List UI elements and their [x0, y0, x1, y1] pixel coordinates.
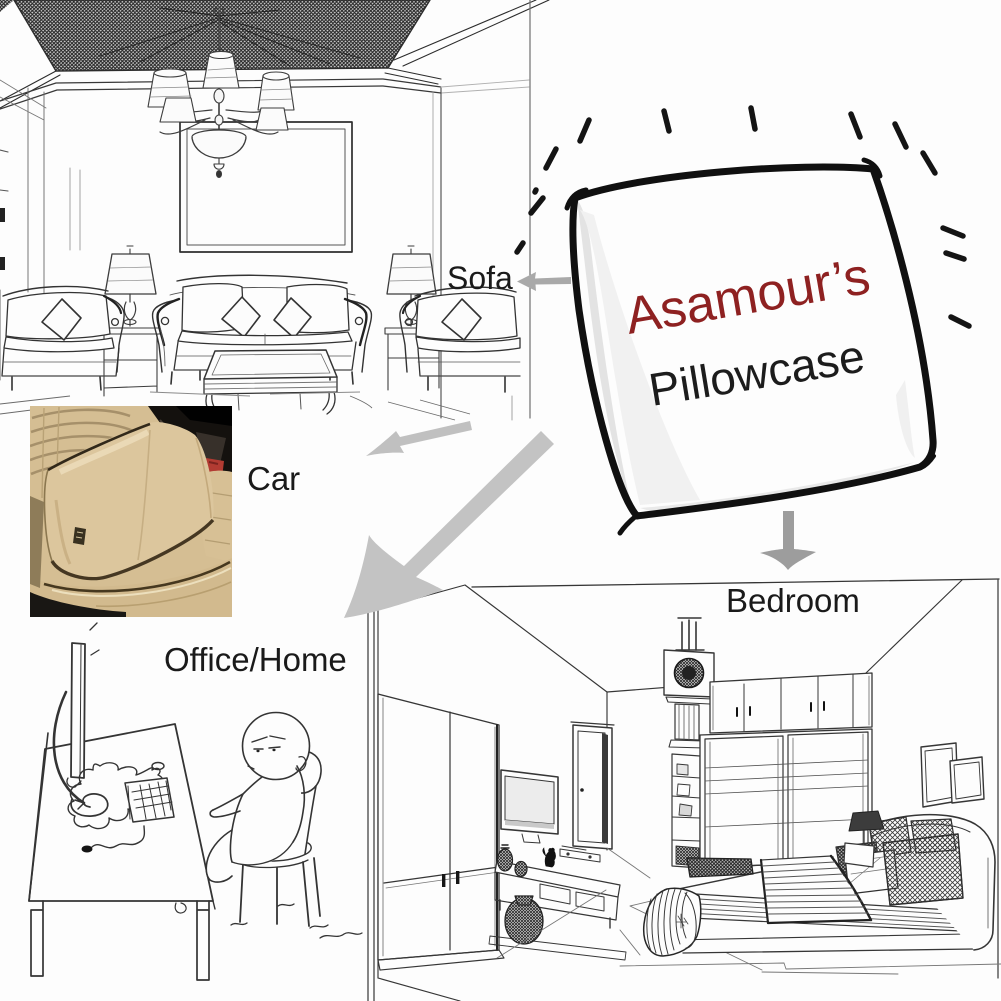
svg-text:Asamour’s: Asamour’s: [621, 247, 874, 346]
svg-text:Pillowcase: Pillowcase: [645, 329, 868, 415]
svg-text:Bedroom: Bedroom: [726, 582, 860, 619]
svg-text:Sofa: Sofa: [447, 260, 513, 296]
svg-text:Office/Home: Office/Home: [164, 641, 347, 678]
svg-text:Car: Car: [247, 460, 300, 497]
